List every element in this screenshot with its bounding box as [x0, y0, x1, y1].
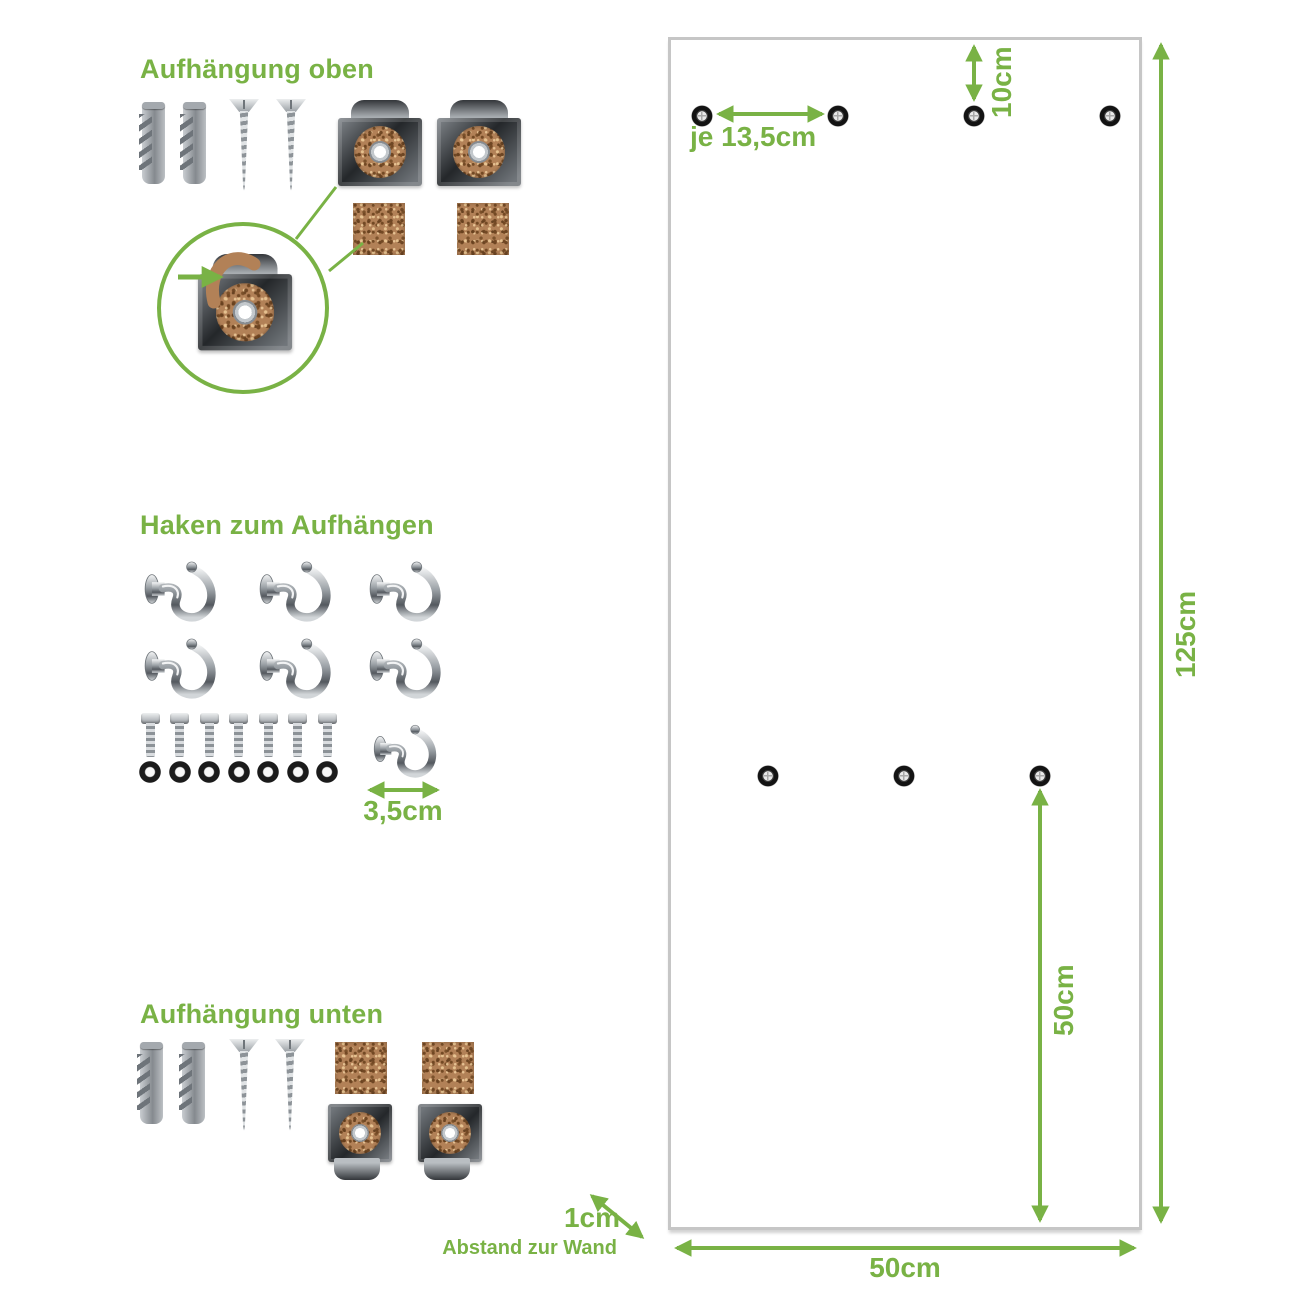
clip-hole	[441, 1124, 459, 1142]
screw-thread	[275, 1051, 305, 1131]
bolt-icon	[200, 713, 219, 758]
washer-icon	[286, 760, 310, 784]
wall-plug-icon	[182, 1042, 205, 1124]
dim-height-label: 125cm	[1170, 591, 1202, 678]
screw-icon	[275, 1039, 305, 1131]
wall-plug-icon	[140, 1042, 163, 1124]
cup-hook-icon	[363, 633, 445, 699]
cork-pad-icon	[353, 203, 405, 255]
bolt-icon	[318, 713, 337, 758]
mounting-hole	[757, 765, 779, 787]
clip-lip	[424, 1158, 470, 1180]
clip-hole	[468, 141, 490, 163]
bolt-icon	[141, 713, 160, 758]
glass-panel-outline	[668, 37, 1142, 1230]
screw-head	[276, 99, 306, 112]
bolt-icon	[288, 713, 307, 758]
washer-icon	[227, 760, 251, 784]
bolt-icon	[229, 713, 248, 758]
clip-hole	[351, 1124, 369, 1142]
cup-hook-icon	[363, 556, 445, 622]
cork-pad-icon	[457, 203, 509, 255]
wall-plug-icon	[183, 102, 206, 184]
section-title-hooks: Haken zum Aufhängen	[140, 510, 434, 541]
top-mounting-clip-icon	[437, 100, 521, 186]
washer-icon	[315, 760, 339, 784]
clip-detail-magnified	[198, 254, 292, 350]
bolt-icon	[170, 713, 189, 758]
clip-lip	[334, 1158, 380, 1180]
dim-hole-spacing-label: je 13,5cm	[690, 121, 816, 153]
section-title-top-mount: Aufhängung oben	[140, 54, 374, 85]
cup-hook-icon	[253, 633, 335, 699]
cup-hook-icon	[362, 720, 446, 778]
washer-icon	[256, 760, 280, 784]
mounting-hole	[1029, 765, 1051, 787]
screw-thread	[276, 111, 306, 191]
detail-connector-line	[296, 187, 336, 239]
mounting-hole	[963, 105, 985, 127]
cork-pad-icon	[335, 1042, 387, 1094]
screw-icon	[276, 99, 306, 191]
washer-icon	[138, 760, 162, 784]
cup-hook-icon	[138, 556, 220, 622]
clip-hole	[369, 141, 391, 163]
mounting-hole	[827, 105, 849, 127]
wall-plug-icon	[142, 102, 165, 184]
dim-wall-gap-label: 1cm	[535, 1202, 620, 1234]
wall-gap-caption: Abstand zur Wand	[437, 1237, 617, 1260]
section-title-bottom-mount: Aufhängung unten	[140, 999, 383, 1030]
dim-top-offset-label: 10cm	[986, 46, 1018, 118]
washer-icon	[197, 760, 221, 784]
washer-icon	[168, 760, 192, 784]
screw-thread	[229, 1051, 259, 1131]
bottom-mounting-clip-icon	[418, 1104, 482, 1180]
bolt-icon	[259, 713, 278, 758]
screw-icon	[229, 99, 259, 191]
screw-head	[229, 1039, 259, 1052]
cup-hook-icon	[253, 556, 335, 622]
top-mounting-clip-icon	[338, 100, 422, 186]
screw-icon	[229, 1039, 259, 1131]
cork-pad-icon	[422, 1042, 474, 1094]
mounting-hole	[1099, 105, 1121, 127]
mounting-instructions-diagram: Aufhängung oben Haken zum Aufhängen	[0, 0, 1300, 1300]
clip-hole	[233, 300, 258, 325]
screw-thread	[229, 111, 259, 191]
mounting-hole	[893, 765, 915, 787]
dim-hook-size-label: 3,5cm	[353, 795, 453, 827]
screw-head	[229, 99, 259, 112]
dim-mid-to-bottom-label: 50cm	[1048, 964, 1080, 1036]
bottom-mounting-clip-icon	[328, 1104, 392, 1180]
cup-hook-icon	[138, 633, 220, 699]
screw-head	[275, 1039, 305, 1052]
dim-width-label: 50cm	[668, 1252, 1142, 1284]
